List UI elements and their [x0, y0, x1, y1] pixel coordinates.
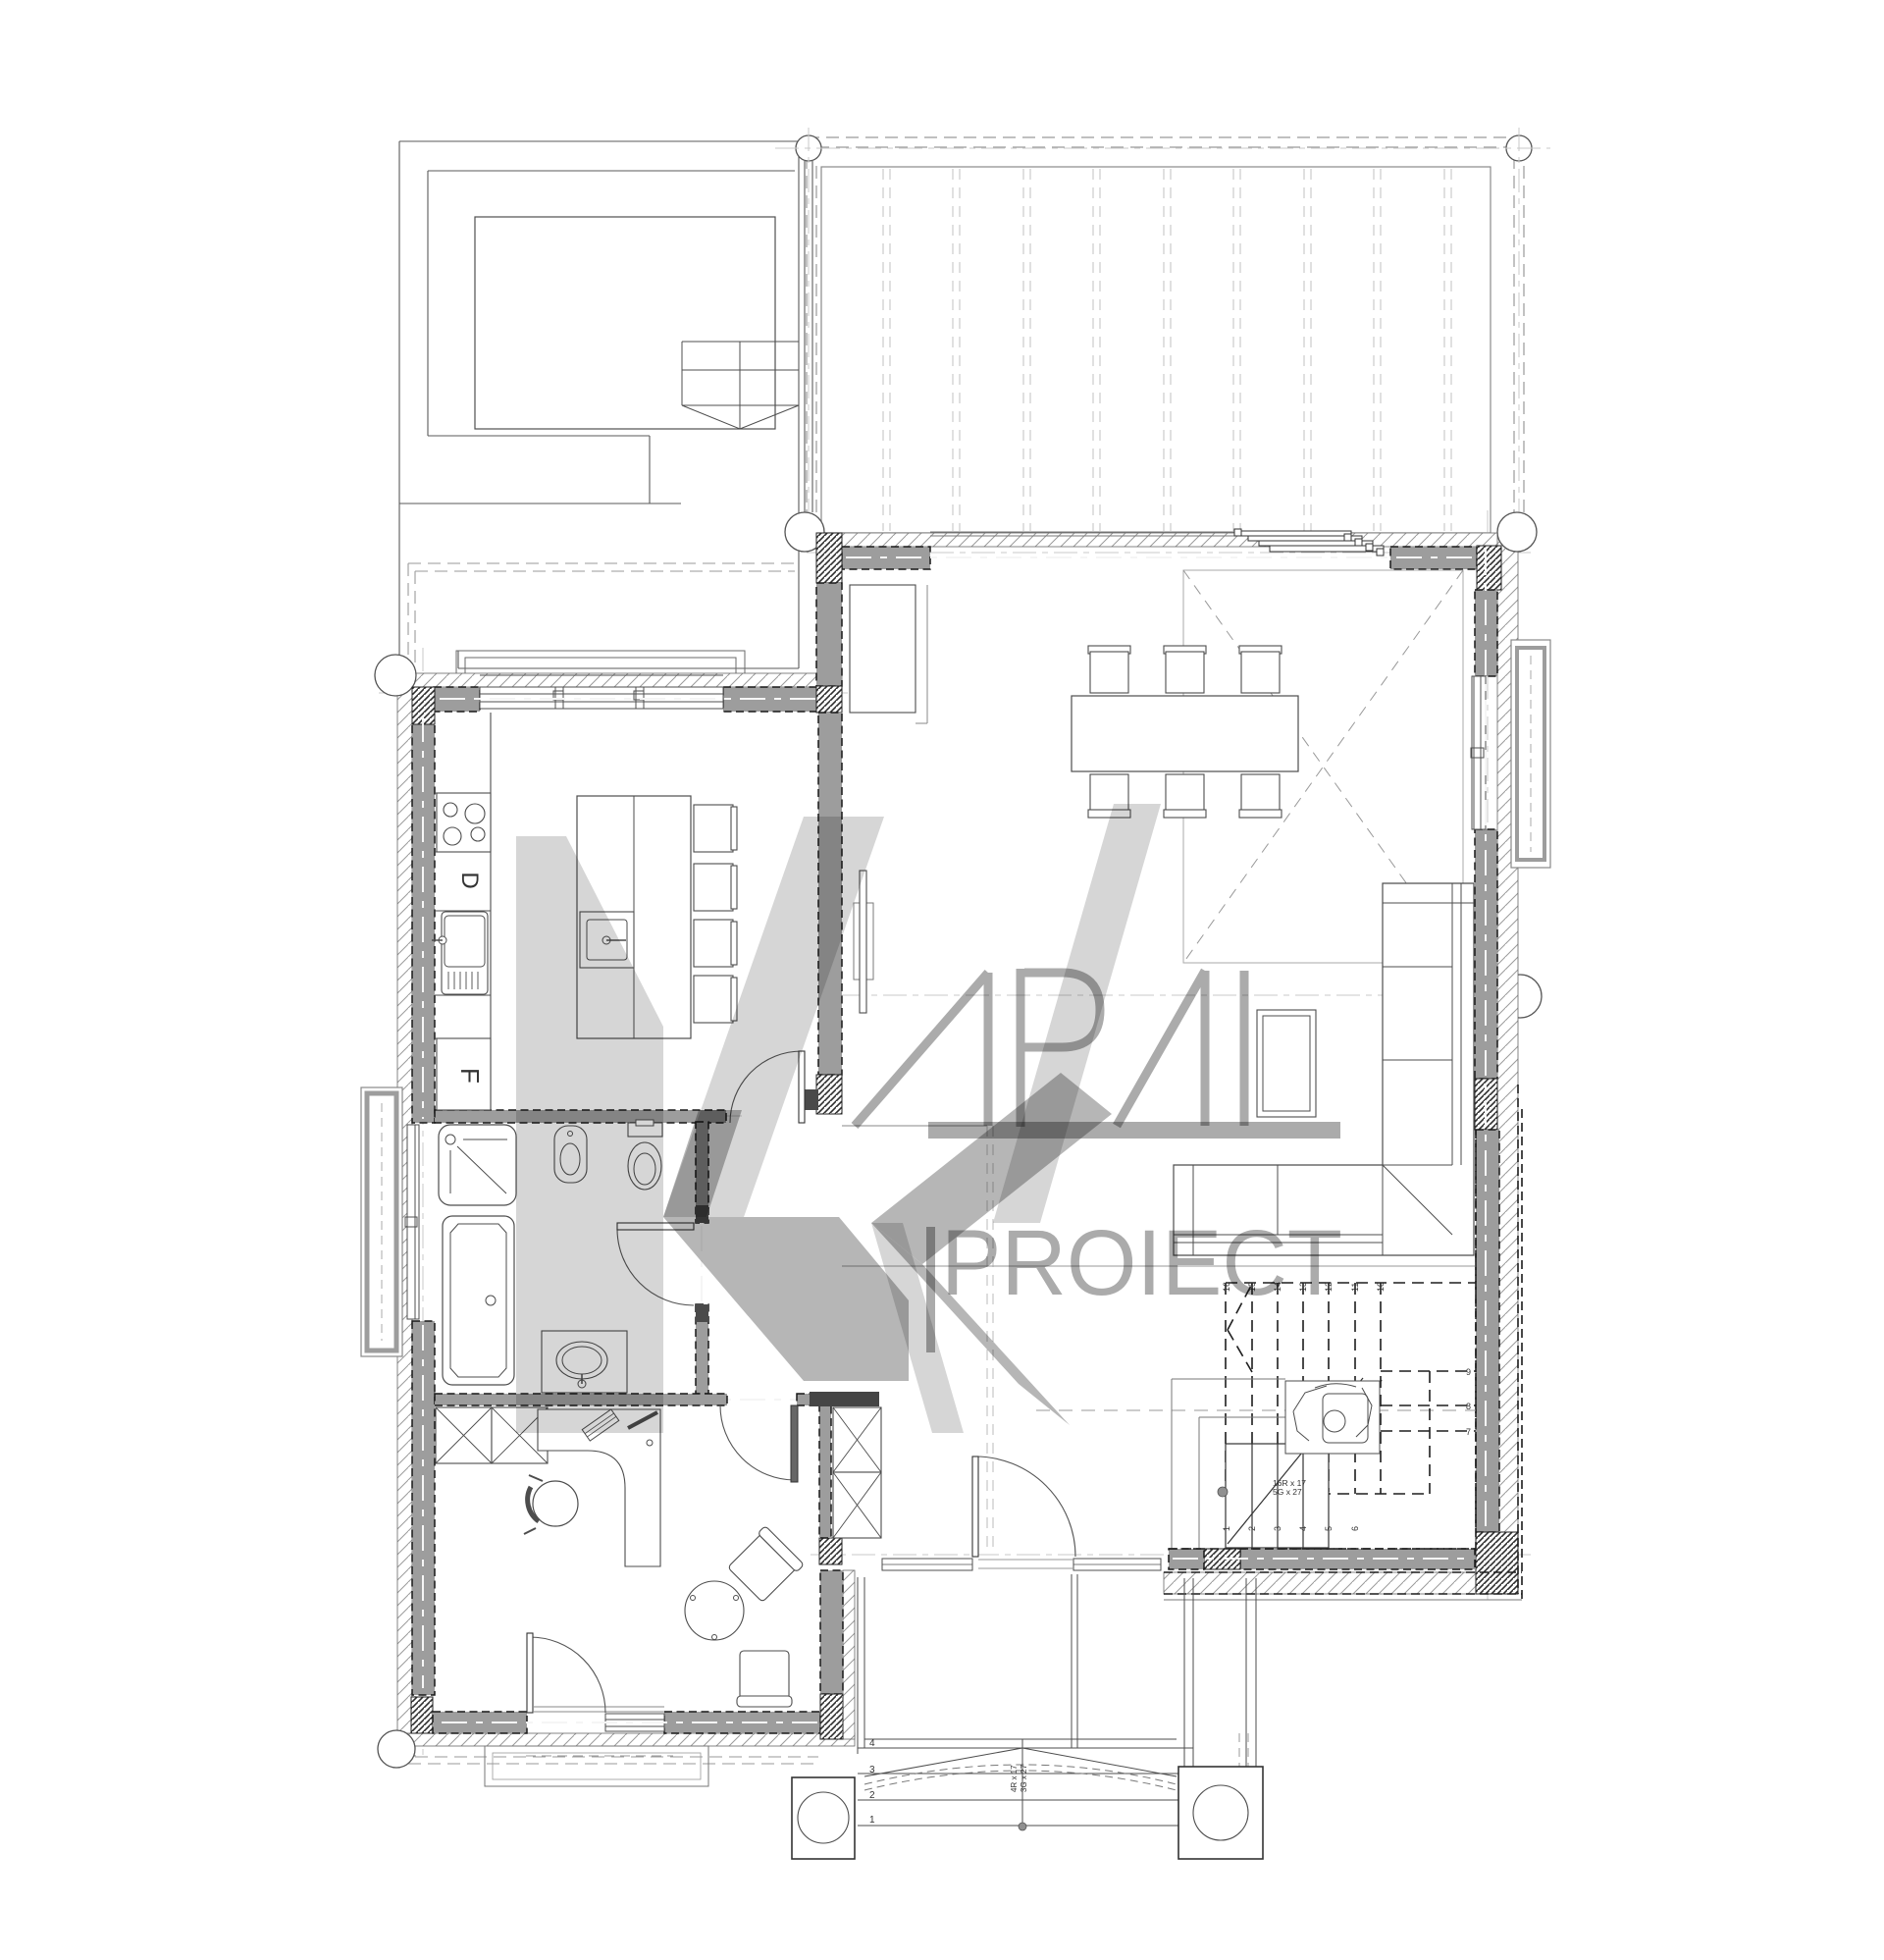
svg-text:4: 4 — [1298, 1526, 1308, 1531]
svg-text:9: 9 — [1466, 1367, 1471, 1377]
svg-text:3G x 27: 3G x 27 — [1020, 1764, 1028, 1792]
svg-text:10: 10 — [1376, 1282, 1386, 1292]
svg-text:2: 2 — [869, 1790, 875, 1801]
svg-text:D: D — [456, 872, 483, 888]
svg-text:6: 6 — [1350, 1526, 1360, 1531]
svg-text:5: 5 — [1324, 1526, 1334, 1531]
svg-text:11: 11 — [1350, 1283, 1360, 1292]
svg-text:8: 8 — [1466, 1402, 1471, 1411]
svg-text:1: 1 — [869, 1815, 875, 1826]
svg-text:3: 3 — [869, 1765, 875, 1775]
svg-text:4: 4 — [869, 1738, 875, 1749]
svg-text:4R x 17: 4R x 17 — [1010, 1765, 1019, 1792]
svg-text:1: 1 — [1222, 1526, 1231, 1531]
svg-text:7: 7 — [1466, 1427, 1471, 1437]
svg-text:F: F — [455, 1068, 485, 1084]
svg-text:5G x 27: 5G x 27 — [1273, 1487, 1302, 1497]
svg-text:2: 2 — [1247, 1526, 1257, 1531]
svg-text:3: 3 — [1273, 1526, 1282, 1531]
svg-text:PROIECT: PROIECT — [941, 1211, 1342, 1315]
